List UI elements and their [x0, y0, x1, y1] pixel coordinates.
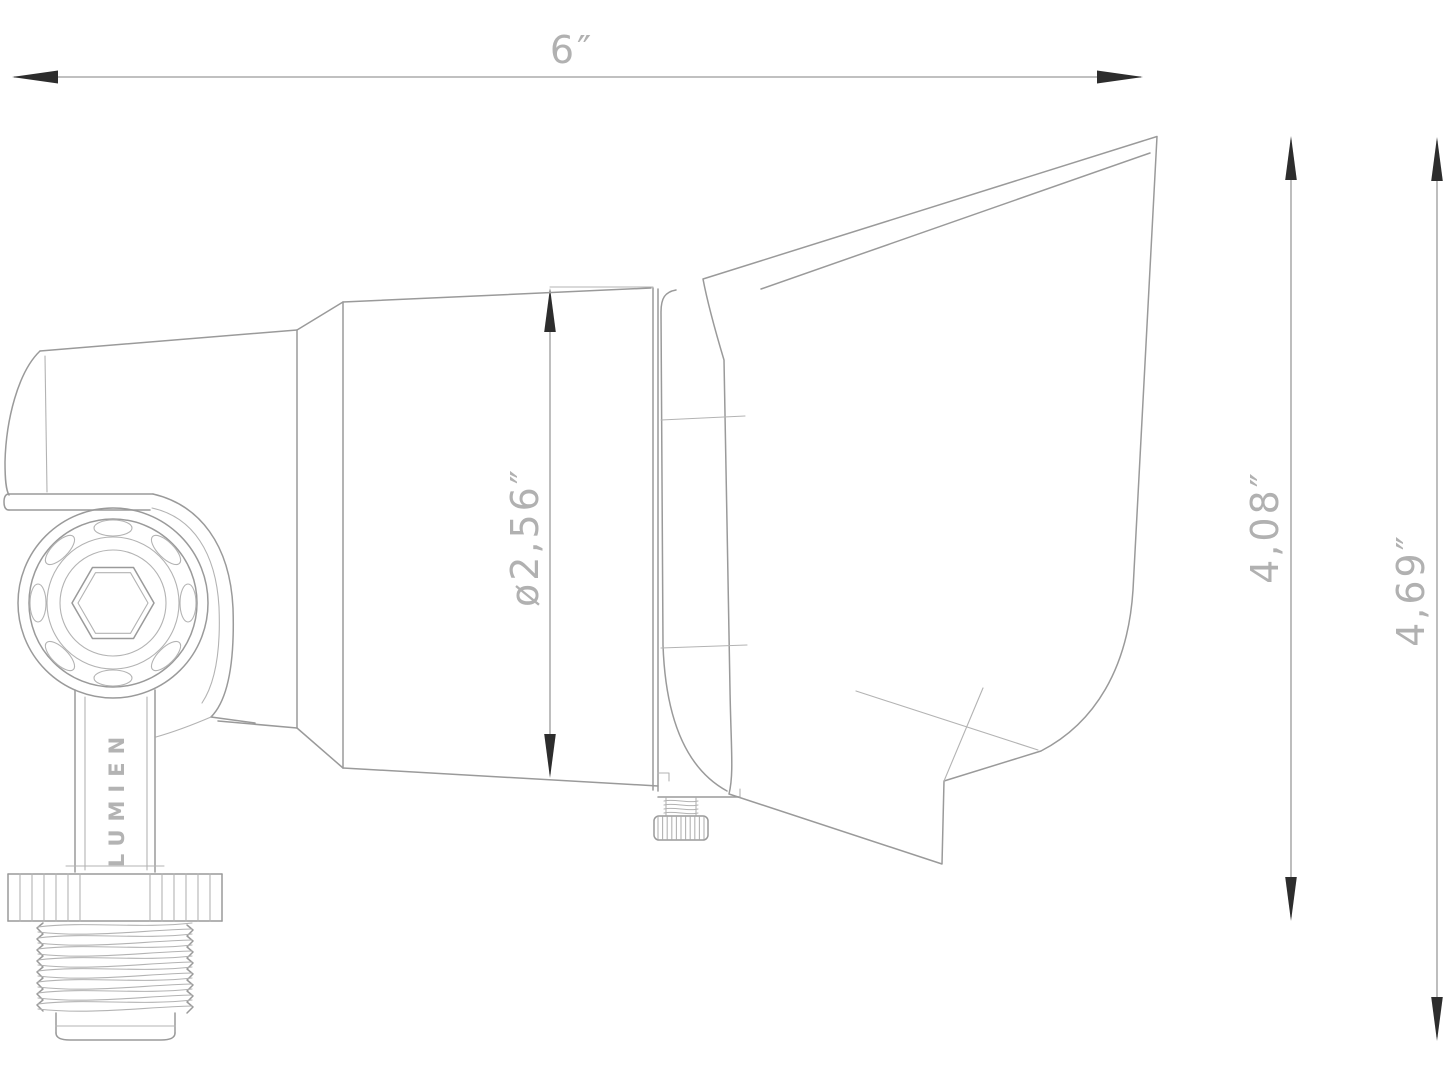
lamp-body [5, 288, 658, 791]
hood-shroud [661, 137, 1157, 865]
knuckle [4, 494, 255, 872]
dim-diameter-label: ø2,56″ [503, 467, 547, 607]
arrowhead-right-icon [1097, 71, 1143, 84]
knurled-nut [8, 874, 222, 921]
mounting-stem [8, 874, 222, 1040]
arrowhead-up-icon [1285, 136, 1297, 180]
dim-height-overall-label: 4,69″ [1389, 533, 1433, 647]
dim-width-label: 6″ [550, 28, 594, 72]
arrowhead-down-icon [544, 734, 556, 778]
stem-collar [56, 1013, 175, 1040]
arrowhead-up-icon [1431, 137, 1443, 181]
flood-light-drawing [0, 0, 1445, 1084]
hex-socket-icon [72, 568, 154, 639]
dimension-diameter [544, 287, 653, 778]
socket-lobes [30, 520, 196, 686]
arrowhead-down-icon [1431, 997, 1443, 1041]
arrowhead-left-icon [12, 71, 58, 84]
arrowhead-down-icon [1285, 877, 1297, 921]
arrowhead-up-icon [544, 288, 556, 332]
thumbscrew-assembly [654, 773, 740, 840]
dimension-width [12, 71, 1143, 84]
pipe-threads [37, 923, 193, 1013]
dim-height-hood-label: 4,08″ [1243, 470, 1287, 584]
technical-drawing-page: 6″ ø2,56″ 4,08″ 4,69″ LUMIEN [0, 0, 1445, 1084]
brand-text: LUMIEN [105, 729, 129, 867]
